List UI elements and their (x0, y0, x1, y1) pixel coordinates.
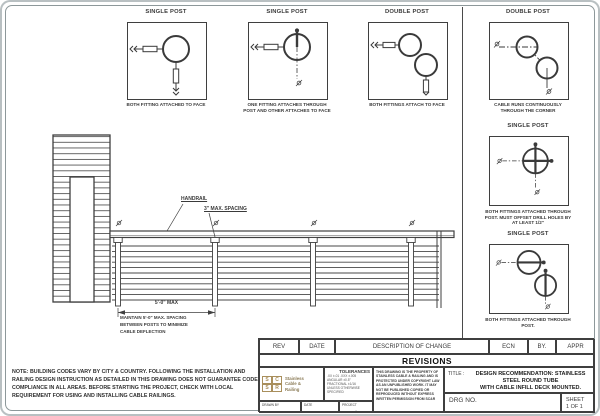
single-post-diagram-icon (128, 23, 206, 99)
logo-letter: S (262, 384, 272, 392)
post-section-diagram (489, 22, 569, 100)
by-header: BY. (528, 339, 556, 354)
post-spacing-note: MAINTAIN 5'-0" MAX. SPACING BETWEEN POST… (120, 315, 220, 335)
railing-elevation-drawing (42, 120, 462, 342)
detail-caption: BOTH FITTING ATTACHED TO FACE (120, 102, 212, 108)
centerline-symbols (116, 220, 415, 226)
handrail-label: HANDRAIL (181, 196, 207, 202)
detail-title: SINGLE POST (119, 9, 213, 15)
post-section-diagram (127, 22, 207, 100)
cables (112, 246, 439, 300)
appr-header: APPR (556, 339, 595, 354)
title-label: TITLE : (448, 371, 464, 377)
drawing-title: DESIGN RECOMMENDATION: STAINLESS STEEL R… (445, 368, 594, 392)
project-value: - (340, 407, 372, 412)
double-post-diagram-icon (490, 23, 568, 99)
post-section-diagram (489, 244, 569, 314)
title-block: REV DATE DESCRIPTION OF CHANGE ECN BY. A… (258, 338, 594, 412)
detail-caption: BOTH FITTINGS ATTACHED THROUGH POST. MUS… (482, 209, 574, 226)
detail-caption: BOTH FITTINGS ATTACH TO FACE (361, 102, 453, 108)
description-header: DESCRIPTION OF CHANGE (335, 339, 489, 354)
logo-letter: S (262, 376, 272, 384)
revisions-banner: REVISIONS (259, 354, 595, 367)
copyright-cell: THIS DRAWING IS THE PROPERTY OF STAINLES… (373, 367, 444, 413)
title-cell: TITLE : DESIGN RECOMMENDATION: STAINLESS… (444, 367, 595, 393)
building-codes-note: NOTE: BUILDING CODES VARY BY CITY & COUN… (12, 369, 259, 401)
drawn-by-cell: DRAWN BY (259, 401, 301, 413)
handrail-bar (110, 231, 454, 238)
logo-letter: C (272, 376, 282, 384)
drg-no-cell: DRG NO. (444, 393, 561, 413)
sheet-cell: SHEET 1 OF 1 (561, 393, 595, 413)
date-header: DATE (299, 339, 335, 354)
project-cell: PROJECT - (339, 401, 373, 413)
post-section-diagram (248, 22, 328, 100)
tolerances-body: .XX ±.01 .XXX ±.005 ANGULAR ±0.5° FRACTI… (325, 374, 372, 394)
detail-title: SINGLE POST (240, 9, 334, 15)
single-post-diagram-icon (490, 137, 568, 205)
post-section-diagram (489, 136, 569, 206)
detail-title: DOUBLE POST (360, 9, 454, 15)
spacing-label: 3" MAX. SPACING (204, 206, 247, 212)
detail-title: SINGLE POST (481, 231, 575, 237)
drawing-sheet: SINGLE POST BOTH FITTING ATTACHED TO FAC… (0, 0, 600, 416)
post-spacing-dimension: 5'-0" MAX (118, 300, 215, 306)
end-termination (437, 231, 441, 308)
post-section-diagram (368, 22, 448, 100)
detail-title: SINGLE POST (481, 123, 575, 129)
ecn-header: ECN (489, 339, 528, 354)
date-cell: DATE (301, 401, 339, 413)
single-post-diagram-icon (249, 23, 327, 99)
section-divider-line (462, 7, 463, 338)
tolerances-cell: TOLERANCES .XX ±.01 .XXX ±.005 ANGULAR ±… (324, 367, 373, 401)
single-post-diagram-icon (490, 245, 568, 313)
detail-title: DOUBLE POST (481, 9, 575, 15)
rev-header: REV (259, 339, 299, 354)
company-logo: S C S R (262, 376, 282, 392)
detail-caption: CABLE RUNS CONTINUOUSLY THROUGH THE CORN… (482, 102, 574, 113)
company-name: Stainless Cable & Railing (285, 376, 304, 392)
detail-caption: BOTH FITTINGS ATTACHED THROUGH POST. (482, 317, 574, 328)
posts (114, 238, 415, 307)
detail-caption: ONE FITTING ATTACHES THROUGH POST AND OT… (241, 102, 333, 113)
logo-letter: R (272, 384, 282, 392)
company-cell: S C S R Stainless Cable & Railing (259, 367, 324, 401)
double-post-diagram-icon (369, 23, 447, 99)
wall-post-face (70, 177, 94, 302)
